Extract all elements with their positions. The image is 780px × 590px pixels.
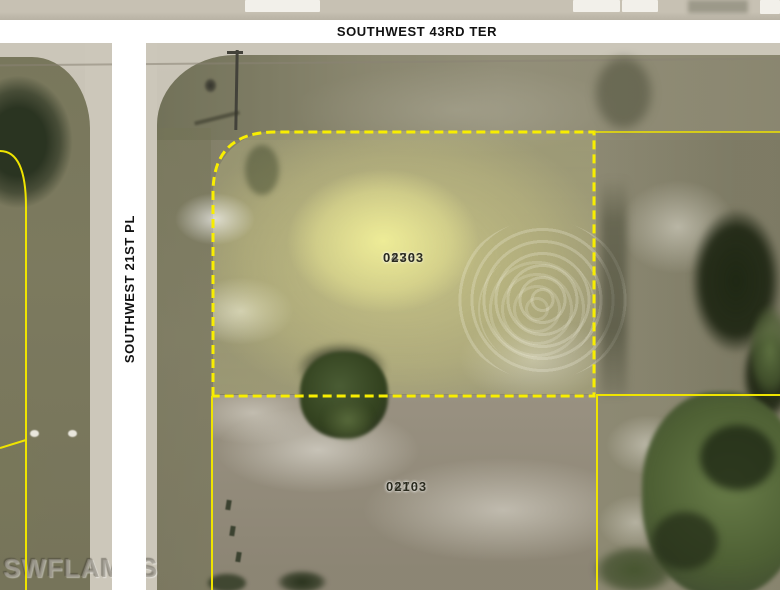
boundary-solid-west-parcel	[0, 151, 26, 590]
street-name-vertical: SOUTHWEST 21ST PL	[122, 215, 137, 418]
street-label-band-horizontal: SOUTHWEST 43RD TER	[0, 20, 780, 43]
aerial-parcel-map: SOUTHWEST 43RD TER SOUTHWEST 21ST PL 047…	[0, 0, 780, 590]
parcel-number-line: 0230	[383, 250, 416, 265]
boundary-solid-west-diagonal	[0, 440, 26, 448]
parcel-number-line: 0210	[386, 479, 419, 494]
street-name-horizontal: SOUTHWEST 43RD TER	[0, 24, 780, 39]
street-label-band-vertical: SOUTHWEST 21ST PL	[112, 43, 146, 590]
